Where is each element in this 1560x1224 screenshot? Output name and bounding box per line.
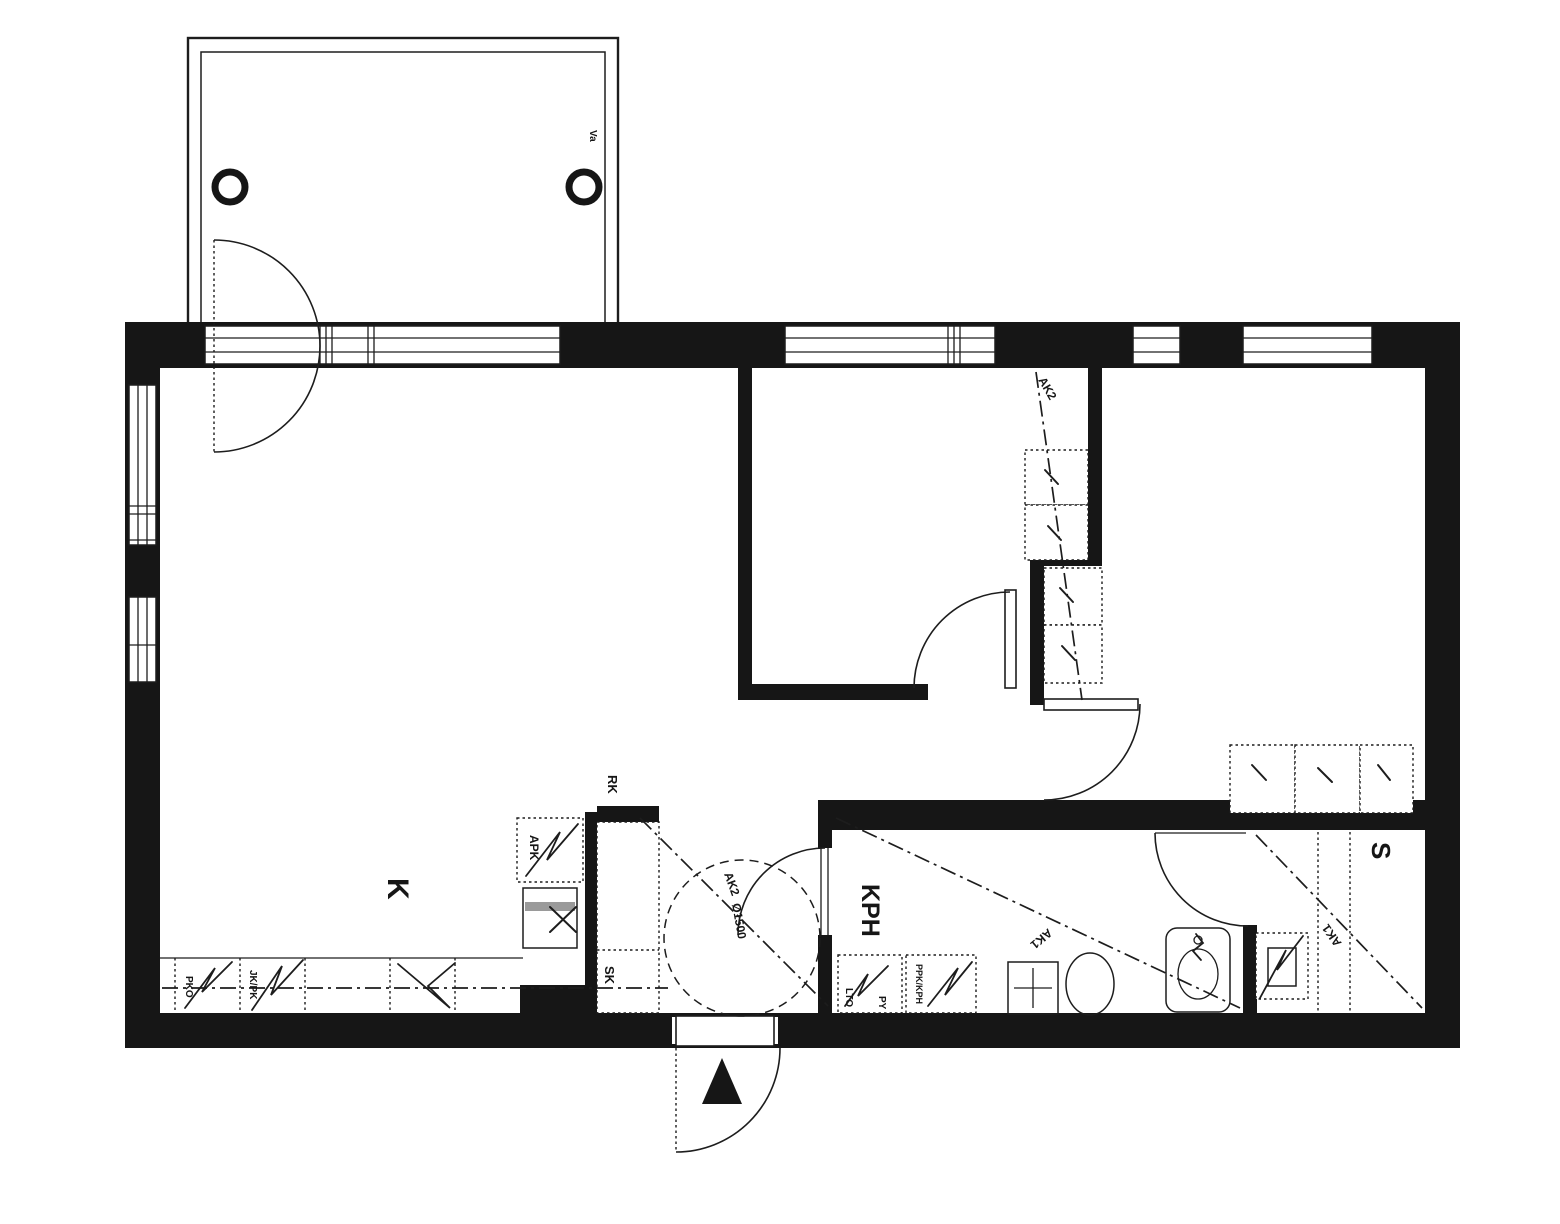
balcony-column-left xyxy=(215,172,245,202)
bedroom3-small-window xyxy=(1133,326,1180,364)
floor-plan-page: K KPH S RK APK SK JK/PK PKO LTO PY PPK/K… xyxy=(0,0,1560,1224)
ak2-label-hall: AK2 xyxy=(721,870,742,898)
closet-column-wall xyxy=(1088,368,1102,564)
apk-label: APK xyxy=(527,835,541,861)
ak1-label-kph: AK1 xyxy=(1027,926,1055,952)
entrance-arrow-icon xyxy=(702,1058,742,1104)
kph-left-wall-upper xyxy=(818,800,832,848)
balcony-column-right xyxy=(569,172,599,202)
jkpk-reservation-mark xyxy=(252,960,303,1010)
entrance-door-slab xyxy=(676,1016,774,1046)
bathroom-fixtures xyxy=(836,818,1240,1015)
ppk-kph-label: PPK/KPH xyxy=(914,964,924,1004)
living-bedroom2-wall xyxy=(738,368,752,698)
living-room-window-lower xyxy=(129,597,156,682)
bedroom2-closet-2 xyxy=(1025,505,1088,560)
bottom-wall xyxy=(125,1013,1460,1048)
ak1-label-sauna: AK1 xyxy=(1319,921,1344,949)
sauna-label: S xyxy=(1366,842,1396,859)
bedroom3-closet-3 xyxy=(1360,745,1413,813)
kitchen-label: K xyxy=(381,878,414,900)
pko-label: PKO xyxy=(183,976,194,998)
toilet-bowl xyxy=(1066,953,1114,1015)
right-wall xyxy=(1425,322,1460,1048)
bedroom3-door xyxy=(1044,699,1140,800)
sk-closet xyxy=(597,822,659,1013)
balcony-outer-wall xyxy=(188,38,618,328)
ak2-label-closet: AK2 xyxy=(1035,375,1059,403)
bedroom3-closet-2 xyxy=(1295,745,1360,813)
py-label: PY xyxy=(876,996,887,1010)
sauna-left-wall xyxy=(1243,925,1257,1013)
closets xyxy=(1025,372,1413,813)
bedroom3-door-leaf xyxy=(1044,699,1138,710)
entrance-door xyxy=(672,1016,780,1152)
bedroom3-door-arc xyxy=(1044,704,1140,800)
floor-plan-drawing: K KPH S RK APK SK JK/PK PKO LTO PY PPK/K… xyxy=(0,0,1560,1224)
bedroom2-window xyxy=(785,326,995,364)
rk-label: RK xyxy=(605,775,620,794)
bedroom2-closet-1 xyxy=(1025,450,1088,505)
sauna xyxy=(1256,832,1422,1013)
hall-bedroom3-wall xyxy=(1030,560,1044,705)
bedroom2-door-arc xyxy=(914,592,1010,688)
bedroom2-door xyxy=(914,590,1016,688)
labels: K KPH S RK APK SK JK/PK PKO LTO PY PPK/K… xyxy=(183,130,1396,1010)
balcony xyxy=(188,38,618,328)
bedroom3-closet-1 xyxy=(1230,745,1295,813)
sauna-door-arc xyxy=(1155,833,1248,926)
kitchen-base-stub xyxy=(520,985,597,1013)
stove-box xyxy=(523,888,577,948)
sk-label: SK xyxy=(602,966,617,985)
bedroom2-bottom-wall xyxy=(738,684,928,700)
bathroom-label: KPH xyxy=(856,884,884,937)
turning-circle-label: Ø1500 xyxy=(729,902,749,940)
nook-closet-1 xyxy=(1044,568,1102,625)
cabinet-reservation-mark xyxy=(398,963,455,1008)
bedroom2-door-leaf xyxy=(1005,590,1016,688)
sauna-door xyxy=(1155,833,1248,926)
apk-dishwasher-box xyxy=(517,818,583,882)
balcony-inner-wall xyxy=(201,52,605,326)
kitchen-closet-wall xyxy=(585,812,597,1013)
balcony-note-label: Va xyxy=(587,130,598,142)
living-room-window-upper xyxy=(129,385,156,545)
jk-pk-label: JK/PK xyxy=(247,970,258,1000)
rk-wall-stub xyxy=(597,806,659,822)
bedroom3-window xyxy=(1243,326,1372,364)
lto-label: LTO xyxy=(843,988,854,1007)
balcony-window-band xyxy=(205,326,560,364)
